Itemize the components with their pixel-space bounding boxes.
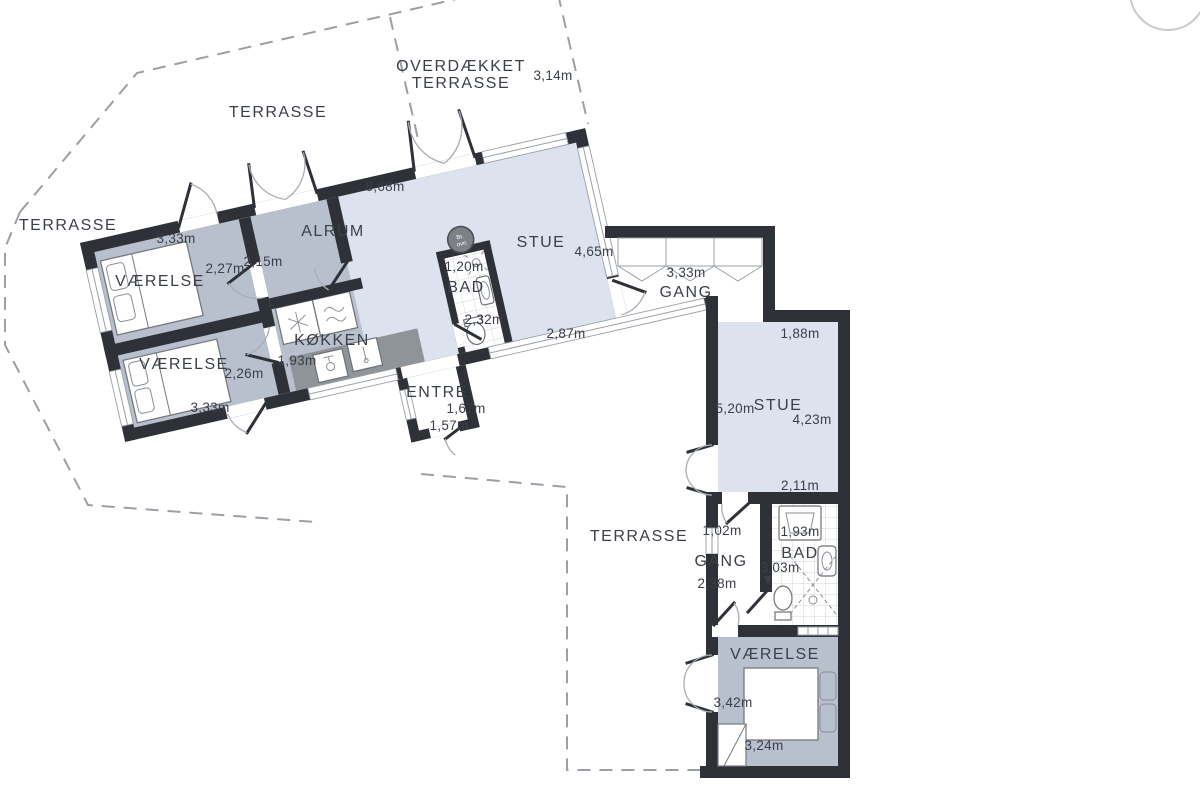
wall (700, 766, 850, 778)
measurement: 5,20m (715, 401, 754, 416)
wall (763, 310, 850, 322)
wall (838, 322, 850, 778)
door-arc (445, 438, 455, 457)
measurement: 4,65m (574, 244, 613, 259)
measurement: 3,33m (666, 265, 705, 280)
measurement: 3,42m (713, 695, 752, 710)
terrasse-top-label: TERRASSE (229, 104, 327, 121)
measurement: 1,88m (780, 326, 819, 341)
wall (763, 238, 775, 312)
gang-right-label: GANG (694, 553, 747, 570)
measurement: 1,67m (446, 401, 485, 416)
floor-plan-drawing: Br. ovn (0, 0, 1200, 800)
alrum-label: ALRUM (301, 223, 365, 240)
wall (605, 226, 775, 238)
vaerelse1-label: VÆRELSE (115, 273, 205, 290)
interior-door (722, 504, 748, 523)
overdaekket-label-1: OVERDÆKKET (396, 58, 526, 75)
french-door (686, 445, 712, 495)
measurement: 2,87m (546, 326, 585, 341)
measurement: 3,33m (190, 400, 229, 415)
wall (706, 712, 718, 766)
bad-left-label: BAD (447, 279, 484, 296)
measurement: 3,33m (156, 231, 195, 246)
vaerelse3-label: VÆRELSE (730, 646, 820, 663)
terrasse-bottom-label: TERRASSE (590, 528, 688, 545)
covered-terrace-outline (558, 0, 588, 124)
entre-label: ENTRÉ (406, 382, 468, 401)
floor-plan-page: Br. ovn (0, 0, 1200, 800)
measurement: 2,11m (781, 478, 819, 493)
stue-left-label: STUE (517, 234, 566, 251)
door-opening (712, 625, 738, 637)
shelf-closet (798, 627, 838, 635)
measurement: 2,26m (224, 366, 263, 381)
measurement: 3,24m (744, 738, 783, 753)
terrasse-left-label: TERRASSE (19, 217, 117, 234)
left-wing: Br. ovn (70, 66, 729, 526)
measurement: 4,23m (792, 412, 831, 427)
vaerelse2-label: VÆRELSE (139, 356, 229, 373)
measurement: 3,14m (533, 68, 572, 83)
compass-circle (1130, 0, 1200, 30)
koekken-label: KØKKEN (294, 332, 370, 349)
measurement: 2,27m (205, 261, 244, 276)
toilet-icon (774, 586, 792, 620)
overdaekket-label-2: TERRASSE (412, 75, 510, 92)
measurement: 3,03m (760, 560, 799, 575)
measurement: 1,57m (429, 418, 468, 433)
measurement: 1,02m (702, 523, 741, 538)
measurement: 2,32m (464, 312, 503, 327)
measurement: 2,38m (697, 576, 736, 591)
french-door (684, 655, 712, 712)
closet-icon (718, 724, 746, 766)
sink-unit (313, 349, 348, 383)
washbasin-icon (818, 546, 836, 576)
measurement: 8,68m (365, 179, 404, 194)
measurement: 1,93m (277, 353, 316, 368)
wall (706, 296, 718, 445)
measurement: 2,15m (243, 254, 282, 269)
door-leaf (748, 592, 766, 612)
door-opening (722, 492, 748, 504)
gang-top-label: GANG (659, 284, 712, 301)
terrace-bottom-outline (421, 474, 706, 770)
measurement: 1,93m (780, 524, 819, 539)
measurement: 1,20m (444, 259, 483, 274)
